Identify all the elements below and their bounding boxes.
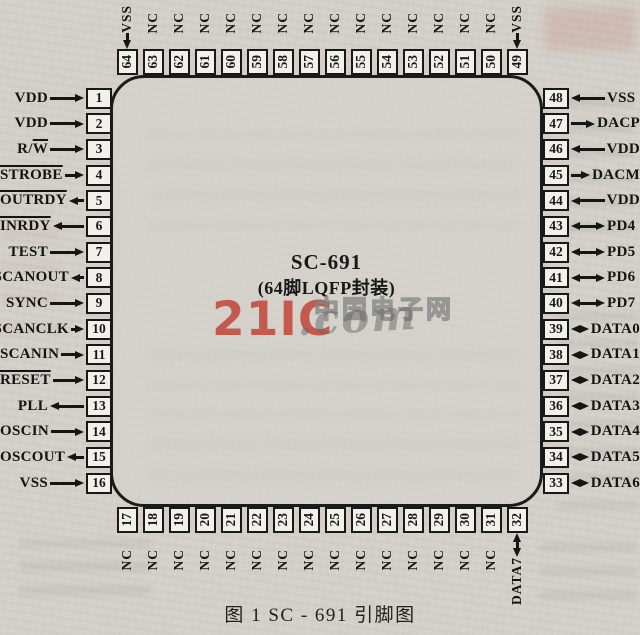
pin-38: 38DATA1	[543, 344, 640, 366]
pin-box: 64	[117, 49, 138, 75]
pin-box: 23	[273, 507, 294, 533]
pin-number: 34	[549, 449, 563, 465]
chip-name: SC-691	[110, 250, 543, 275]
pin-label: NC	[197, 549, 213, 571]
pin-number: 60	[223, 55, 239, 69]
pin-box: 55	[351, 49, 372, 75]
pin-29: 29NC	[428, 507, 450, 571]
pin-2: VDD2	[0, 113, 112, 135]
arrowhead-icon	[513, 533, 521, 542]
pin-11: SCANIN11	[0, 344, 112, 366]
arrow-bidirectional-icon	[571, 273, 605, 283]
pin-46: 46VDD	[543, 138, 640, 160]
pin-label: DATA2	[591, 372, 640, 389]
pin-box: 29	[429, 507, 450, 533]
pin-number: 15	[92, 449, 106, 465]
pin-box: 6	[86, 216, 112, 237]
overline-text: OUTRDY	[0, 192, 67, 208]
pin-label: VSS	[20, 475, 48, 492]
pin-number: 40	[549, 295, 563, 311]
pin-26: 26NC	[350, 507, 372, 571]
pin-box: 43	[543, 216, 569, 237]
pin-box: 12	[86, 370, 112, 391]
pin-box: 42	[543, 242, 569, 263]
arrow-line	[50, 97, 75, 100]
pin-box: 33	[543, 473, 569, 494]
arrow-output-icon	[53, 221, 84, 231]
pin-48: 48VSS	[543, 87, 640, 109]
arrowhead-icon	[75, 120, 84, 128]
pin-59: NC59	[246, 0, 268, 75]
pin-number: 18	[145, 513, 161, 527]
pin-number: 47	[549, 116, 563, 132]
pin-number: 45	[549, 167, 563, 183]
pin-label: NC	[405, 12, 421, 34]
pin-label: DATA3	[591, 398, 640, 415]
arrow-input-icon	[512, 33, 522, 49]
pin-label: VSS	[509, 5, 525, 33]
arrow-input-icon	[71, 324, 84, 334]
pin-label: VDD	[607, 141, 640, 158]
pin-23: 23NC	[272, 507, 294, 571]
arrow-line	[50, 302, 75, 305]
pin-label: NC	[145, 549, 161, 571]
pin-16: VSS16	[0, 472, 112, 494]
pin-box: 50	[481, 49, 502, 75]
pin-number: 42	[549, 244, 563, 260]
arrow-line	[580, 302, 596, 305]
pin-49: VSS49	[506, 0, 528, 75]
arrowhead-icon	[596, 248, 605, 256]
pin-box: 14	[86, 421, 112, 442]
arrow-bidirectional-icon	[571, 221, 605, 231]
pin-box: 45	[543, 165, 569, 186]
arrowhead-icon	[571, 453, 580, 461]
arrow-output-icon	[71, 273, 84, 283]
arrowhead-icon	[571, 479, 580, 487]
pin-58: NC58	[272, 0, 294, 75]
pin-4: STROBE4	[0, 164, 112, 186]
arrowhead-icon	[596, 222, 605, 230]
arrowhead-icon	[581, 171, 590, 179]
pin-number: 55	[353, 55, 369, 69]
pin-box: 54	[377, 49, 398, 75]
pin-box: 58	[273, 49, 294, 75]
pin-52: NC52	[428, 0, 450, 75]
pin-label: NC	[223, 12, 239, 34]
pin-number: 7	[96, 244, 103, 260]
pin-17: 17NC	[116, 507, 138, 571]
pin-label: SCANCLK	[0, 321, 69, 338]
arrowhead-icon	[580, 453, 589, 461]
pin-40: 40PD7	[543, 292, 640, 314]
pin-label: NC	[275, 12, 291, 34]
arrowhead-icon	[75, 171, 84, 179]
pin-number: 17	[119, 513, 135, 527]
arrowhead-icon	[571, 145, 580, 153]
pin-label: NC	[457, 12, 473, 34]
arrow-line	[571, 122, 586, 125]
pin-box: 44	[543, 190, 569, 211]
arrow-input-icon	[50, 298, 84, 308]
pin-label: PD5	[607, 244, 635, 261]
pin-label: VDD	[607, 192, 640, 209]
arrow-line	[59, 405, 84, 408]
pin-3: R/W3	[0, 138, 112, 160]
arrowhead-icon	[71, 274, 80, 282]
pin-label: PLL	[18, 398, 48, 415]
pin-box: 62	[169, 49, 190, 75]
arrow-line	[50, 122, 75, 125]
arrowhead-icon	[571, 402, 580, 410]
arrow-line	[580, 148, 605, 151]
arrowhead-icon	[571, 325, 580, 333]
pin-label: OUTRDY	[0, 192, 67, 209]
arrowhead-icon	[586, 120, 595, 128]
pin-label: OSCIN	[0, 423, 49, 440]
pin-number: 49	[509, 55, 525, 69]
overline-text: RESET	[0, 372, 51, 388]
pin-box: 59	[247, 49, 268, 75]
pin-label: NC	[249, 549, 265, 571]
pin-28: 28NC	[402, 507, 424, 571]
pin-label: VDD	[15, 90, 48, 107]
pin-box: 41	[543, 267, 569, 288]
pin-47: 47DACP	[543, 113, 640, 135]
pin-box: 3	[86, 139, 112, 160]
arrow-line	[65, 174, 75, 177]
pin-box: 17	[117, 507, 138, 533]
pin-box: 38	[543, 344, 569, 365]
pin-number: 20	[197, 513, 213, 527]
pin-number: 38	[549, 347, 563, 363]
arrow-output-icon	[50, 401, 84, 411]
pin-number: 53	[405, 55, 421, 69]
arrowhead-icon	[571, 428, 580, 436]
pin-box: 60	[221, 49, 242, 75]
overline-text: W	[33, 141, 48, 157]
pin-number: 32	[509, 513, 525, 527]
pin-18: 18NC	[142, 507, 164, 571]
pin-number: 63	[145, 55, 161, 69]
arrow-line	[51, 430, 75, 433]
pin-number: 22	[249, 513, 265, 527]
arrow-line	[76, 456, 84, 459]
pin-number: 48	[549, 90, 563, 106]
pin-label: DACM	[592, 167, 640, 184]
pin-box: 56	[325, 49, 346, 75]
arrowhead-icon	[67, 453, 76, 461]
pin-7: TEST7	[0, 241, 112, 263]
pin-label: DATA0	[591, 321, 640, 338]
pin-39: 39DATA0	[543, 318, 640, 340]
pin-box: 18	[143, 507, 164, 533]
arrow-line	[580, 276, 596, 279]
arrow-line	[62, 225, 84, 228]
arrow-input-icon	[50, 93, 84, 103]
arrowhead-icon	[75, 145, 84, 153]
pin-21: 21NC	[220, 507, 242, 571]
pin-31: 31NC	[480, 507, 502, 571]
arrowhead-icon	[580, 325, 589, 333]
pin-label: NC	[197, 12, 213, 34]
arrowhead-icon	[580, 376, 589, 384]
pin-number: 16	[92, 475, 106, 491]
pin-27: 27NC	[376, 507, 398, 571]
arrow-bidirectional-icon	[571, 324, 589, 334]
pin-box: 35	[543, 421, 569, 442]
pin-box: 30	[455, 507, 476, 533]
arrowhead-icon	[580, 351, 589, 359]
pin-14: OSCIN14	[0, 421, 112, 443]
pin-32: 32DATA7	[506, 507, 528, 605]
arrow-line	[126, 33, 129, 40]
pin-label: NC	[379, 12, 395, 34]
arrowhead-icon	[571, 222, 580, 230]
pin-35: 35DATA4	[543, 421, 640, 443]
pin-number: 5	[96, 193, 103, 209]
arrow-line	[580, 251, 596, 254]
arrow-bidirectional-icon	[571, 350, 589, 360]
arrowhead-icon	[571, 351, 580, 359]
pin-number: 13	[92, 398, 106, 414]
pin-label: NC	[457, 549, 473, 571]
arrow-line	[80, 276, 84, 279]
pin-label: DATA5	[591, 449, 640, 466]
pin-box: 4	[86, 165, 112, 186]
arrowhead-icon	[53, 222, 62, 230]
pin-number: 64	[119, 55, 135, 69]
pin-number: 57	[301, 55, 317, 69]
pin-63: NC63	[142, 0, 164, 75]
pin-box: 63	[143, 49, 164, 75]
pin-label: NC	[145, 12, 161, 34]
pin-box: 46	[543, 139, 569, 160]
pin-box: 52	[429, 49, 450, 75]
pin-box: 32	[507, 507, 528, 533]
pin-number: 44	[549, 193, 563, 209]
pin-box: 28	[403, 507, 424, 533]
pin-12: RESET12	[0, 369, 112, 391]
pin-5: OUTRDY5	[0, 190, 112, 212]
arrow-input-icon	[50, 119, 84, 129]
pin-number: 10	[92, 321, 106, 337]
pin-label: NC	[353, 549, 369, 571]
pin-box: 39	[543, 319, 569, 340]
arrowhead-icon	[75, 94, 84, 102]
arrowhead-icon	[123, 40, 131, 49]
pin-36: 36DATA3	[543, 395, 640, 417]
pin-42: 42PD5	[543, 241, 640, 263]
arrowhead-icon	[513, 548, 521, 557]
pin-number: 46	[549, 141, 563, 157]
pin-label: SCANOUT	[0, 269, 69, 286]
pin-number: 6	[96, 218, 103, 234]
arrow-input-icon	[571, 144, 605, 154]
pin-number: 2	[96, 116, 103, 132]
pin-number: 61	[197, 55, 213, 69]
pin-box: 61	[195, 49, 216, 75]
pin-24: 24NC	[298, 507, 320, 571]
pin-box: 40	[543, 293, 569, 314]
pin-number: 9	[96, 295, 103, 311]
arrow-line	[50, 251, 75, 254]
pin-45: 45DACM	[543, 164, 640, 186]
pin-number: 39	[549, 321, 563, 337]
arrow-input-icon	[571, 93, 605, 103]
pin-box: 16	[86, 473, 112, 494]
pin-number: 35	[549, 424, 563, 440]
arrowhead-icon	[75, 351, 84, 359]
pin-13: PLL13	[0, 395, 112, 417]
arrowhead-icon	[75, 325, 84, 333]
pin-label: SYNC	[6, 295, 48, 312]
arrowhead-icon	[513, 40, 521, 49]
arrow-input-icon	[65, 170, 84, 180]
pin-number: 8	[96, 270, 103, 286]
pin-label: NC	[483, 549, 499, 571]
pin-number: 33	[549, 475, 563, 491]
pin-number: 21	[223, 513, 239, 527]
pin-number: 31	[483, 513, 499, 527]
pin-label: DACP	[597, 115, 640, 132]
pin-label: INRDY	[0, 218, 51, 235]
arrow-input-icon	[122, 33, 132, 49]
pin-50: NC50	[480, 0, 502, 75]
pin-number: 51	[457, 55, 473, 69]
pin-20: 20NC	[194, 507, 216, 571]
pin-64: VSS64	[116, 0, 138, 75]
arrowhead-icon	[571, 94, 580, 102]
arrow-output-icon	[69, 196, 84, 206]
pin-number: 30	[457, 513, 473, 527]
pin-box: 24	[299, 507, 320, 533]
pin-number: 1	[96, 90, 103, 106]
arrow-output-icon	[67, 452, 84, 462]
arrow-output-icon	[571, 170, 590, 180]
pin-60: NC60	[220, 0, 242, 75]
arrowhead-icon	[571, 299, 580, 307]
pin-number: 56	[327, 55, 343, 69]
pin-box: 36	[543, 396, 569, 417]
pin-label: NC	[431, 549, 447, 571]
pin-55: NC55	[350, 0, 372, 75]
pin-label: SCANIN	[0, 346, 59, 363]
pin-label: NC	[327, 12, 343, 34]
pin-label: PD6	[607, 269, 635, 286]
pin-box: 27	[377, 507, 398, 533]
arrowhead-icon	[75, 479, 84, 487]
arrowhead-icon	[580, 402, 589, 410]
arrow-line	[580, 225, 596, 228]
pin-34: 34DATA5	[543, 446, 640, 468]
pin-number: 62	[171, 55, 187, 69]
pin-box: 8	[86, 267, 112, 288]
scan-artifact	[545, 8, 635, 50]
arrow-bidirectional-icon	[512, 533, 522, 557]
pin-number: 26	[353, 513, 369, 527]
pin-box: 57	[299, 49, 320, 75]
pin-51: NC51	[454, 0, 476, 75]
pin-label: NC	[327, 549, 343, 571]
arrowhead-icon	[75, 248, 84, 256]
pin-number: 23	[275, 513, 291, 527]
pin-number: 41	[549, 270, 563, 286]
pin-1: VDD1	[0, 87, 112, 109]
arrowhead-icon	[69, 197, 78, 205]
arrowhead-icon	[75, 299, 84, 307]
arrowhead-icon	[580, 479, 589, 487]
pin-box: 7	[86, 242, 112, 263]
pin-label: DATA6	[591, 475, 640, 492]
pin-number: 24	[301, 513, 317, 527]
pin-43: 43PD4	[543, 215, 640, 237]
pin-number: 36	[549, 398, 563, 414]
pin-41: 41PD6	[543, 267, 640, 289]
pin-57: NC57	[298, 0, 320, 75]
arrowhead-icon	[580, 428, 589, 436]
pin-box: 53	[403, 49, 424, 75]
arrow-bidirectional-icon	[571, 452, 589, 462]
pin-37: 37DATA2	[543, 369, 640, 391]
pin-box: 20	[195, 507, 216, 533]
pin-label: NC	[301, 12, 317, 34]
pin-62: NC62	[168, 0, 190, 75]
pin-label: NC	[223, 549, 239, 571]
pin-number: 58	[275, 55, 291, 69]
pin-number: 28	[405, 513, 421, 527]
pin-box: 25	[325, 507, 346, 533]
pin-number: 59	[249, 55, 265, 69]
pin-box: 51	[455, 49, 476, 75]
overline-text: STROBE	[0, 167, 63, 183]
pin-box: 34	[543, 447, 569, 468]
arrow-line	[580, 199, 605, 202]
pin-box: 15	[86, 447, 112, 468]
arrow-line	[580, 97, 605, 100]
pin-box: 11	[86, 344, 112, 365]
pin-label: DATA4	[591, 423, 640, 440]
pin-box: 9	[86, 293, 112, 314]
pin-label: DATA1	[591, 346, 640, 363]
pin-label: PD4	[607, 218, 635, 235]
arrowhead-icon	[571, 376, 580, 384]
arrow-input-icon	[53, 375, 84, 385]
pin-number: 54	[379, 55, 395, 69]
pin-box: 2	[86, 113, 112, 134]
pin-label: VSS	[119, 5, 135, 33]
pin-number: 4	[96, 167, 103, 183]
pin-number: 50	[483, 55, 499, 69]
pin-9: SYNC9	[0, 292, 112, 314]
pin-box: 13	[86, 396, 112, 417]
arrow-line	[516, 33, 519, 40]
arrowhead-icon	[50, 402, 59, 410]
pin-61: NC61	[194, 0, 216, 75]
pin-22: 22NC	[246, 507, 268, 571]
pin-15: OSCOUT15	[0, 446, 112, 468]
pin-label: OSCOUT	[0, 449, 65, 466]
arrowhead-icon	[75, 376, 84, 384]
pin-label: TEST	[8, 244, 48, 261]
pin-label: NC	[379, 549, 395, 571]
arrow-input-icon	[51, 427, 84, 437]
pin-box: 10	[86, 319, 112, 340]
figure-caption: 图 1 SC - 691 引脚图	[0, 600, 640, 627]
pin-label: PD7	[607, 295, 635, 312]
pin-number: 43	[549, 218, 563, 234]
pin-33: 33DATA6	[543, 472, 640, 494]
